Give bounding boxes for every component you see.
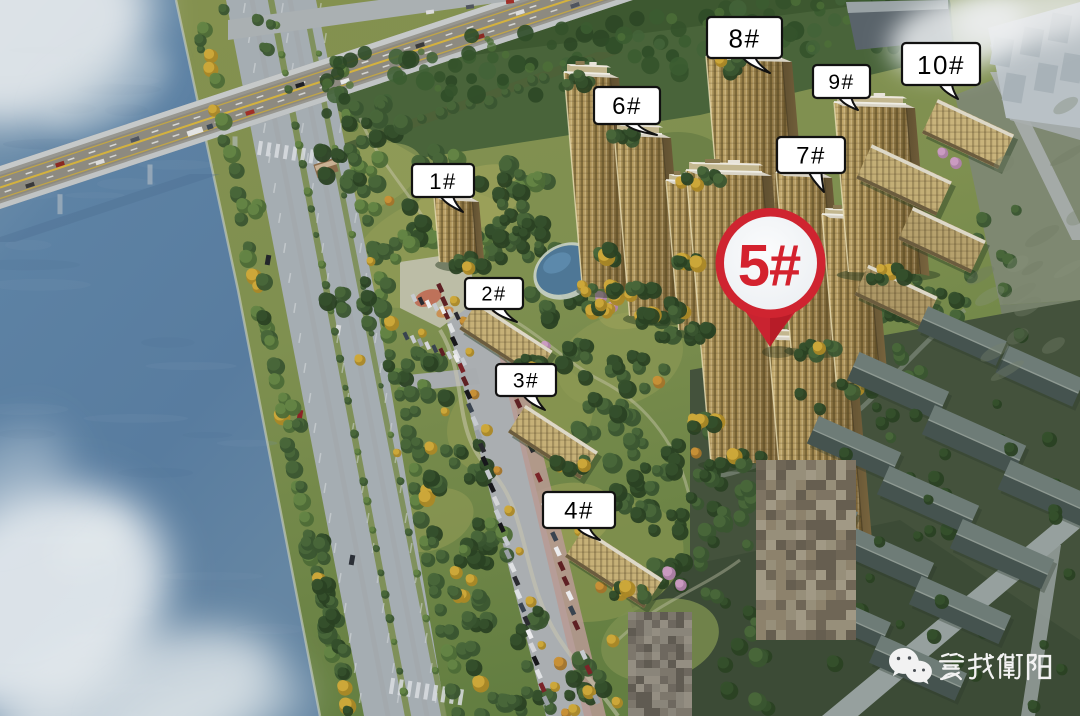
- svg-text:4#: 4#: [564, 498, 594, 525]
- svg-text:6#: 6#: [612, 93, 642, 120]
- svg-text:7#: 7#: [796, 143, 826, 170]
- svg-text:1#: 1#: [429, 169, 456, 194]
- svg-text:8#: 8#: [729, 24, 761, 54]
- svg-text:3#: 3#: [513, 370, 539, 393]
- svg-text:10#: 10#: [917, 50, 965, 80]
- svg-text:9#: 9#: [828, 71, 854, 94]
- svg-text:5#: 5#: [738, 234, 801, 299]
- svg-text:2#: 2#: [481, 284, 506, 306]
